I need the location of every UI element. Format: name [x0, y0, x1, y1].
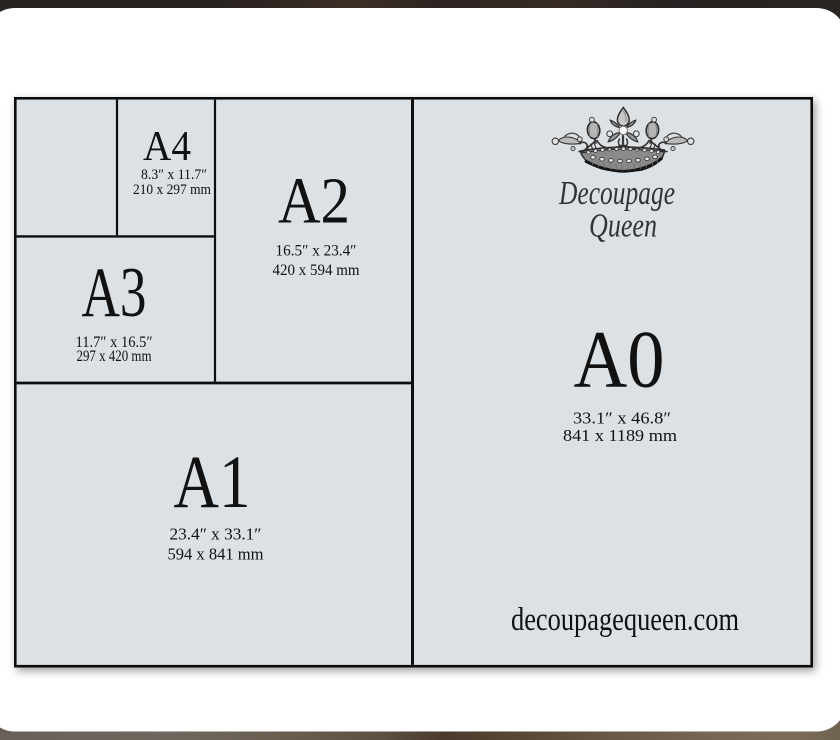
svg-text:A3: A3 — [82, 254, 147, 332]
svg-text:A4: A4 — [143, 124, 191, 170]
svg-text:420 x 594 mm: 420 x 594 mm — [273, 262, 361, 279]
svg-text:Decoupage: Decoupage — [558, 175, 675, 212]
svg-text:594 x 841 mm: 594 x 841 mm — [168, 545, 264, 564]
svg-text:33.1″ x 46.8″: 33.1″ x 46.8″ — [573, 409, 671, 428]
svg-text:841 x 1189 mm: 841 x 1189 mm — [563, 426, 677, 445]
svg-text:210 x 297 mm: 210 x 297 mm — [133, 182, 212, 198]
svg-text:Queen: Queen — [589, 208, 657, 245]
svg-text:23.4″ x 33.1″: 23.4″ x 33.1″ — [170, 525, 262, 544]
svg-text:A1: A1 — [174, 441, 251, 524]
svg-text:8.3″ x 11.7″: 8.3″ x 11.7″ — [141, 167, 207, 183]
svg-text:A2: A2 — [278, 165, 350, 238]
svg-text:16.5″ x 23.4″: 16.5″ x 23.4″ — [276, 243, 357, 260]
svg-text:decoupagequeen.com: decoupagequeen.com — [511, 602, 739, 638]
svg-text:297 x 420 mm: 297 x 420 mm — [77, 348, 152, 365]
svg-text:A0: A0 — [574, 314, 665, 405]
